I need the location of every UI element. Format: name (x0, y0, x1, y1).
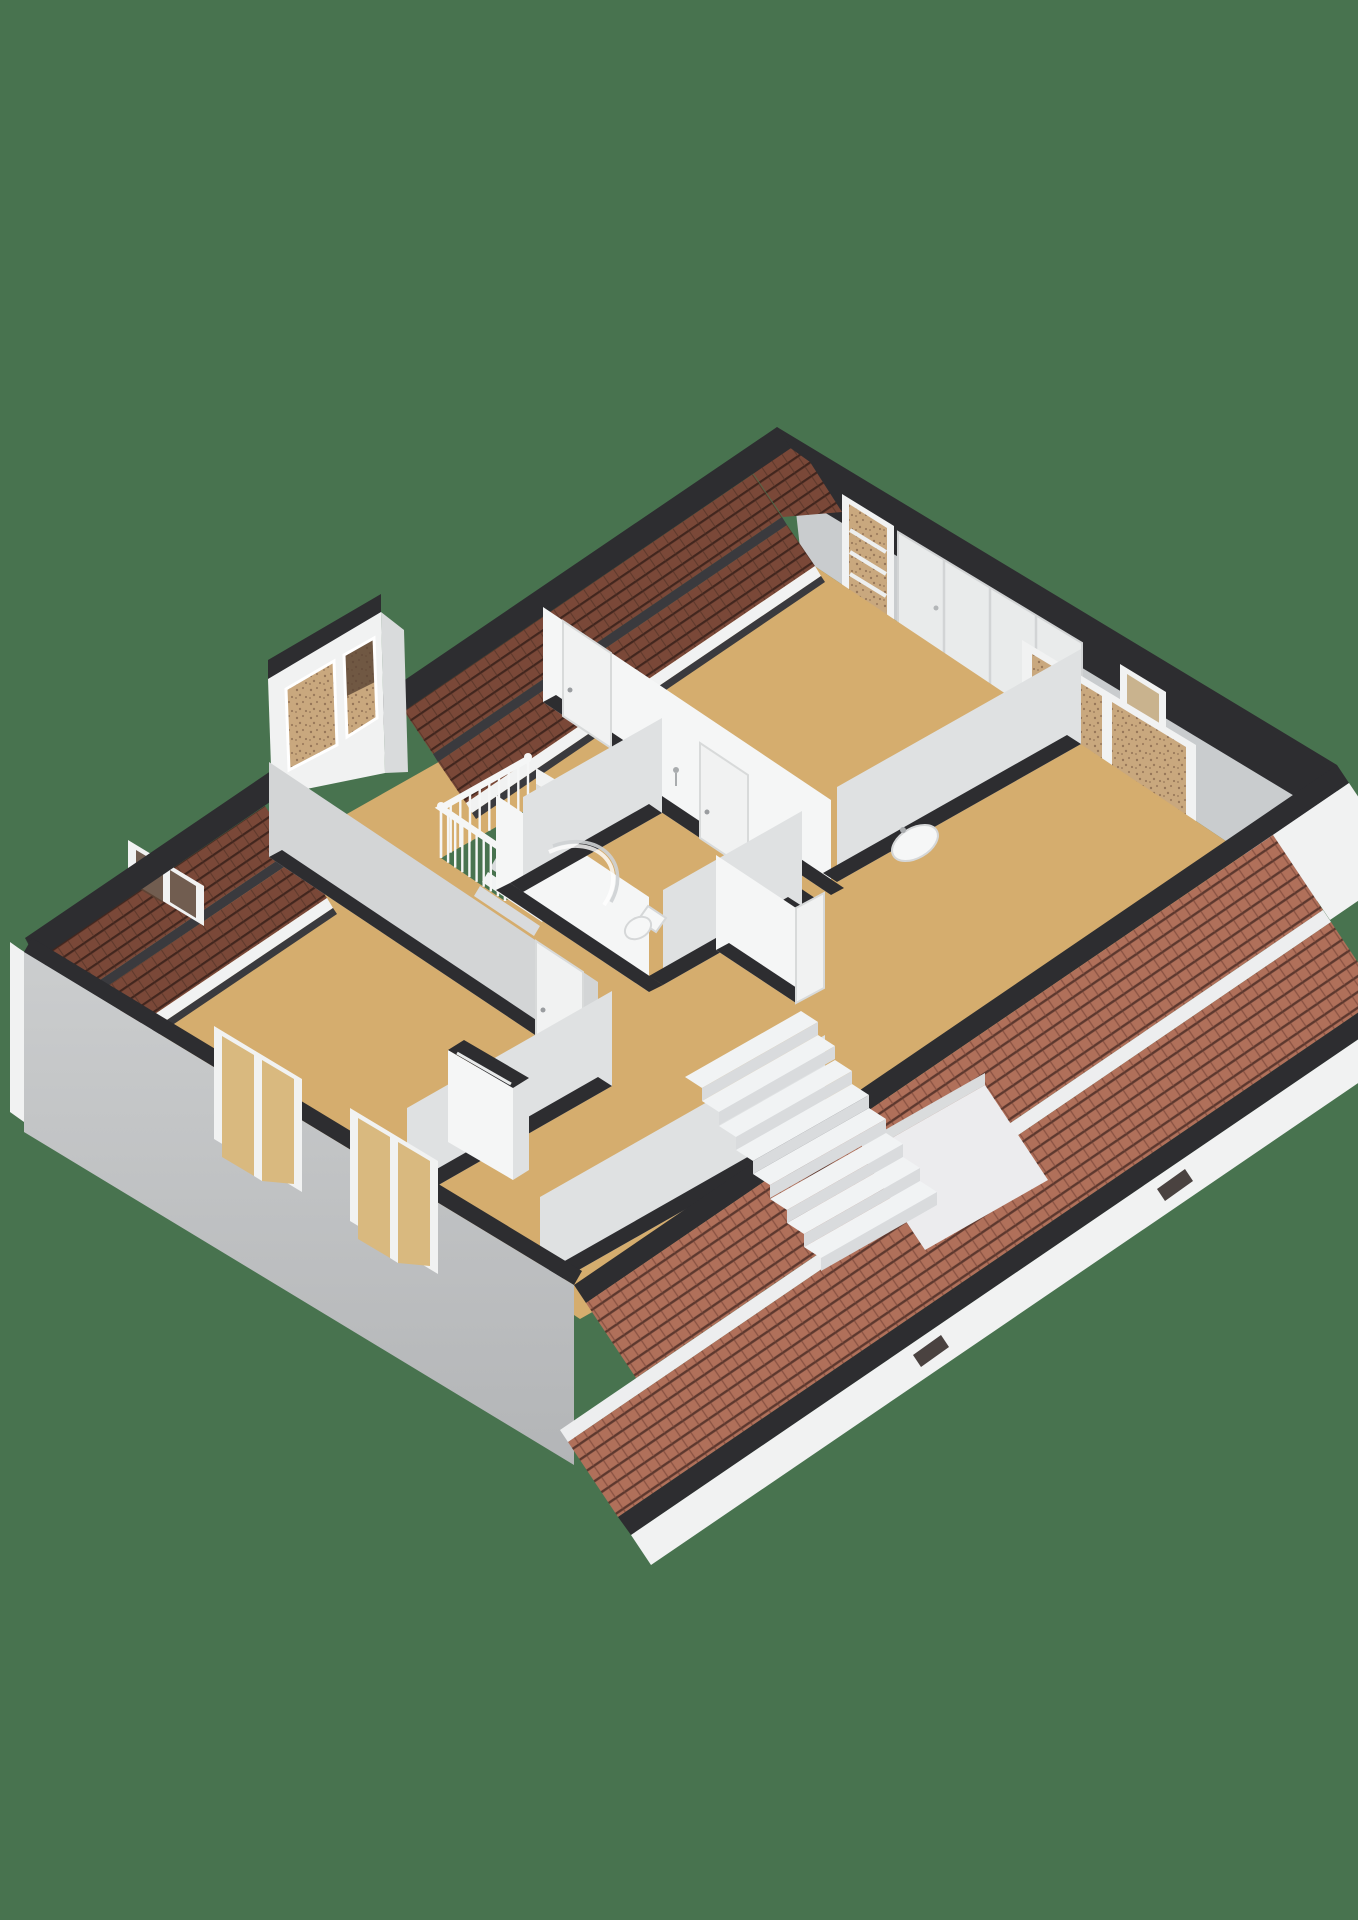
dormer-cheek (381, 612, 408, 773)
balustrade-post (524, 753, 532, 761)
window-glass (222, 1036, 254, 1176)
window-glass (398, 1142, 430, 1266)
balustrade-post (437, 802, 445, 810)
door-handle (568, 688, 573, 693)
window-glass (262, 1060, 294, 1184)
facade-corner-sliver (10, 942, 24, 1122)
window-mullion (390, 1137, 398, 1263)
shower-head (673, 767, 679, 773)
sink-faucet (900, 827, 906, 833)
floorplan-stage (0, 0, 1358, 1920)
window-mullion (254, 1055, 262, 1181)
floorplan-3d-render (0, 0, 1358, 1920)
wardrobe-knob (934, 606, 939, 611)
open-door-leaf (796, 893, 824, 1003)
window-glass (358, 1118, 390, 1258)
chimney-side (513, 1078, 529, 1180)
bathroom-door-handle (705, 810, 710, 815)
bl-door-handle (541, 1008, 546, 1013)
